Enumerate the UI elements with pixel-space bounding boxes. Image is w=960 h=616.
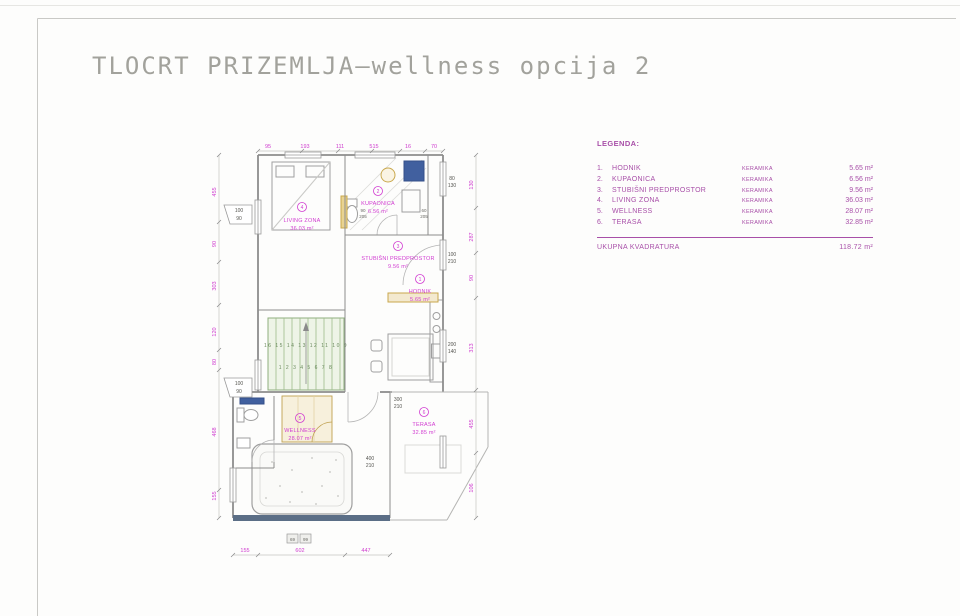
svg-text:32.85 m²: 32.85 m² [412,430,435,436]
spa-pool [252,444,352,514]
svg-text:90: 90 [360,208,366,213]
svg-text:LIVING ZONA: LIVING ZONA [283,218,320,224]
svg-text:5: 5 [299,416,302,422]
svg-text:515: 515 [369,144,378,150]
svg-text:210: 210 [448,259,457,265]
svg-text:36.03 m²: 36.03 m² [290,226,313,232]
svg-text:KUPAONICA: KUPAONICA [361,201,395,207]
wc-fixtures [237,398,264,448]
svg-text:69: 69 [290,537,296,542]
svg-text:9.56 m²: 9.56 m² [388,264,408,270]
dining-table [371,334,433,380]
svg-text:TERASA: TERASA [412,422,435,428]
svg-text:447: 447 [361,548,370,554]
room-label: 3 STUBIŠNI PREDPROSTOR 9.56 m² [361,242,434,271]
svg-text:287: 287 [469,232,475,241]
svg-text:1: 1 [419,277,422,283]
drawing-sheet: TLOCRT PRIZEMLJA–wellness opcija 2 LEGEN… [0,0,960,616]
room-label: 4 LIVING ZONA 36.03 m² [283,203,320,233]
svg-text:300: 300 [394,397,403,403]
svg-text:4: 4 [301,205,304,211]
svg-text:205: 205 [359,214,367,219]
svg-text:HODNIK: HODNIK [409,289,432,295]
svg-text:6.56 m²: 6.56 m² [368,209,388,215]
svg-text:111: 111 [336,144,344,150]
svg-text:205: 205 [420,214,428,219]
glass-sliding-wall [233,515,390,521]
svg-text:455: 455 [212,187,218,196]
svg-text:210: 210 [394,404,403,410]
room-label: 6 TERASA 32.85 m² [412,408,435,437]
sheet-frame [0,6,960,616]
svg-text:602: 602 [295,548,304,554]
terrace-table [405,445,461,473]
svg-text:130: 130 [448,183,457,189]
svg-text:95: 95 [265,144,271,150]
svg-text:80: 80 [212,359,218,365]
floor-plan: 16 15 14 13 12 11 10 9 1 2 3 4 5 6 7 8 [0,0,960,616]
svg-text:200: 200 [448,342,457,348]
svg-text:6: 6 [423,410,426,416]
svg-text:60: 60 [421,208,427,213]
svg-text:313: 313 [469,343,475,352]
svg-text:3: 3 [397,244,400,250]
svg-text:400: 400 [366,456,375,462]
svg-text:80: 80 [449,176,455,182]
svg-text:WELLNESS: WELLNESS [284,428,316,434]
svg-text:210: 210 [366,463,375,469]
svg-text:100: 100 [448,252,457,258]
svg-text:303: 303 [212,281,218,290]
svg-text:90: 90 [469,275,475,281]
svg-text:99: 99 [303,537,309,542]
svg-text:120: 120 [212,327,218,336]
svg-text:100: 100 [235,208,244,214]
svg-text:468: 468 [212,427,218,436]
door-leaf [341,196,347,228]
svg-text:100: 100 [235,381,244,387]
svg-text:90: 90 [212,241,218,247]
svg-text:155: 155 [240,548,249,554]
svg-text:106: 106 [469,483,475,492]
staircase: 16 15 14 13 12 11 10 9 1 2 3 4 5 6 7 8 [264,318,348,390]
svg-text:155: 155 [212,491,218,500]
svg-text:28.07 m²: 28.07 m² [288,436,311,442]
svg-text:140: 140 [448,349,457,355]
svg-text:5.65 m²: 5.65 m² [410,297,430,303]
room-label: 1 HODNIK 5.65 m² [409,275,432,304]
svg-text:2: 2 [377,189,380,195]
svg-text:90: 90 [236,389,242,395]
svg-text:STUBIŠNI PREDPROSTOR: STUBIŠNI PREDPROSTOR [361,255,434,262]
svg-text:16: 16 [405,144,411,150]
svg-text:193: 193 [300,144,309,150]
svg-text:455: 455 [469,419,475,428]
svg-text:70: 70 [431,144,437,150]
svg-text:90: 90 [236,216,242,222]
svg-text:130: 130 [469,180,475,189]
